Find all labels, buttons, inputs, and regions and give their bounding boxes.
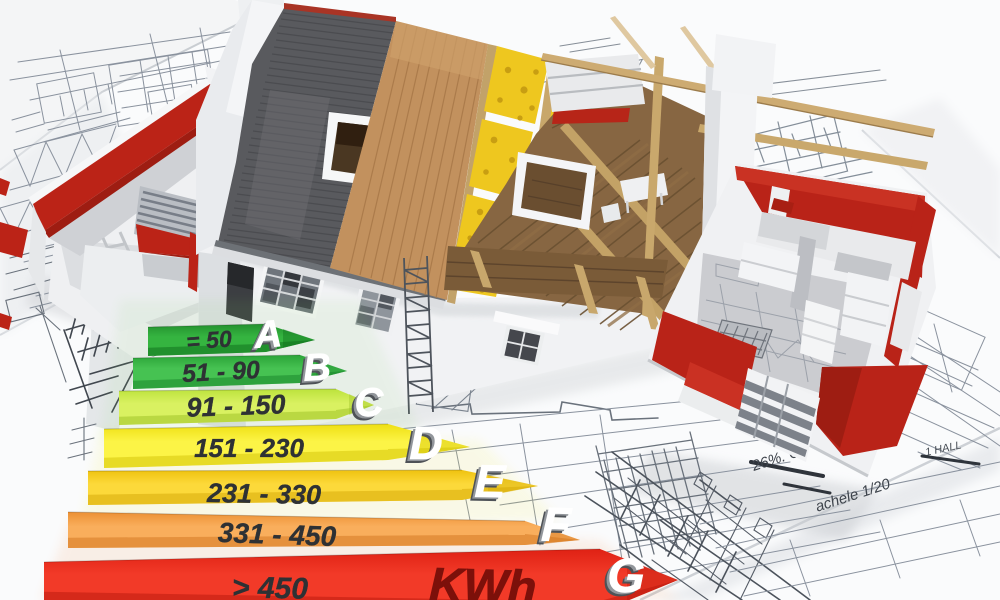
svg-text:B: B	[302, 346, 332, 389]
svg-text:91 - 150: 91 - 150	[186, 389, 286, 422]
svg-text:D: D	[409, 417, 442, 469]
svg-text:> 450: > 450	[232, 571, 309, 600]
svg-text:51 - 90: 51 - 90	[181, 356, 260, 388]
svg-text:F: F	[540, 499, 573, 553]
svg-text:KWh: KWh	[429, 557, 538, 600]
svg-text:G: G	[607, 550, 645, 600]
svg-text:= 50: = 50	[185, 325, 232, 354]
svg-text:231 - 330: 231 - 330	[206, 478, 322, 510]
svg-text:E: E	[474, 455, 507, 508]
svg-text:151 - 230: 151 - 230	[194, 433, 304, 463]
svg-text:C: C	[354, 380, 386, 425]
svg-text:A: A	[252, 313, 283, 357]
svg-text:331 - 450: 331 - 450	[217, 517, 337, 552]
